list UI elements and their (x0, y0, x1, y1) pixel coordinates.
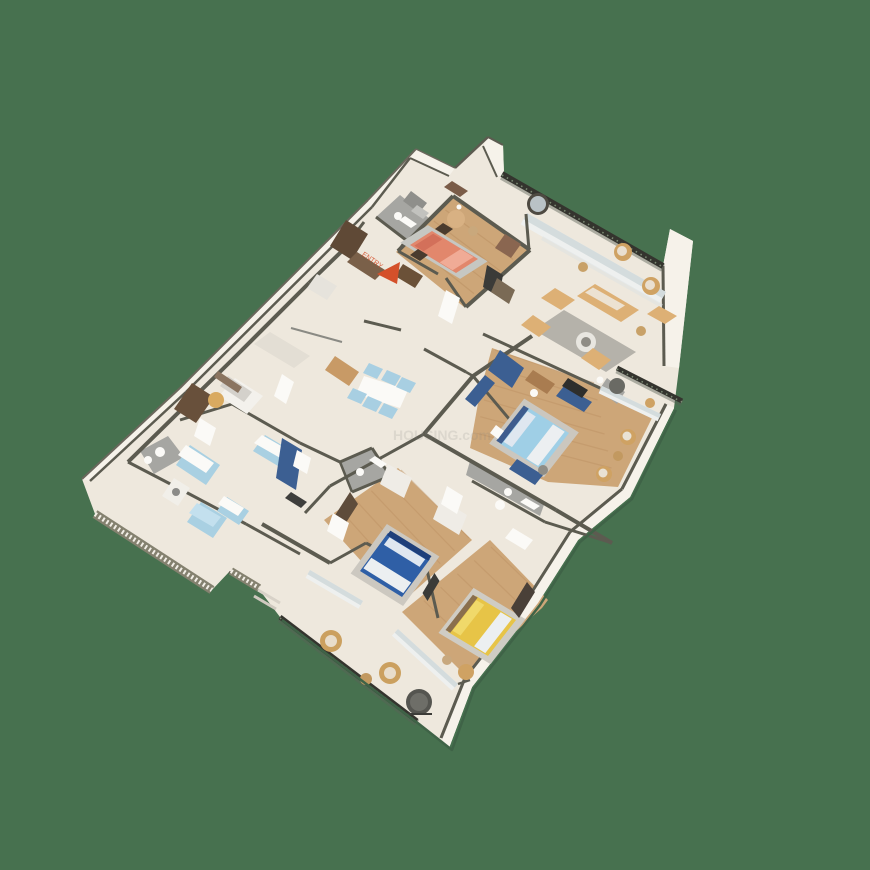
svg-text:HOUSING.com: HOUSING.com (393, 427, 491, 443)
